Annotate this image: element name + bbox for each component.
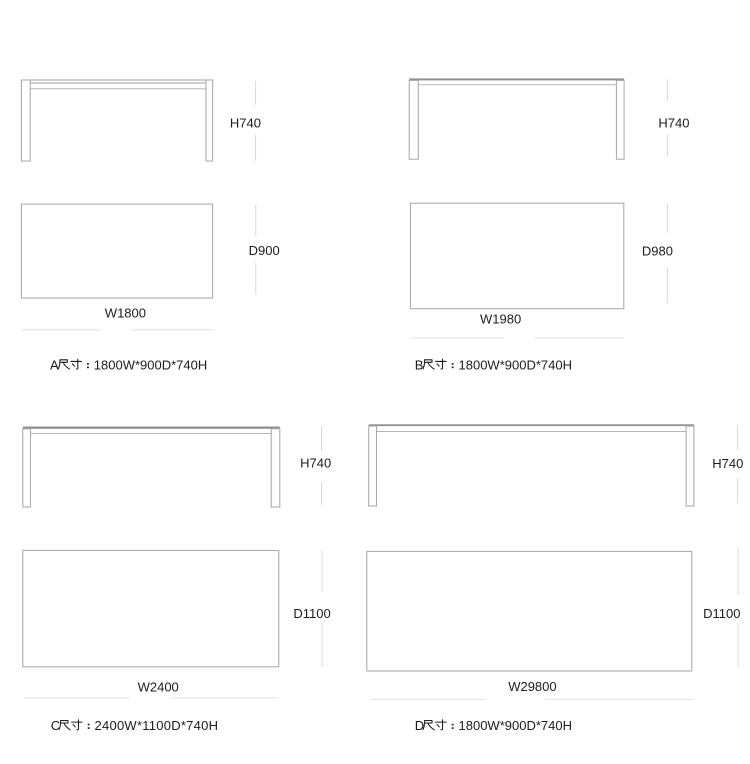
- svg-text:H740: H740: [230, 115, 261, 130]
- svg-text:1800W*900D*740H: 1800W*900D*740H: [94, 358, 207, 373]
- svg-text:C: C: [51, 718, 60, 733]
- svg-text:B: B: [415, 358, 424, 373]
- svg-text:A: A: [50, 358, 59, 373]
- svg-text:D: D: [415, 718, 424, 733]
- svg-text:W1980: W1980: [480, 311, 521, 326]
- svg-text:H740: H740: [300, 455, 331, 470]
- svg-text:D900: D900: [249, 243, 280, 258]
- svg-text:D1100: D1100: [703, 606, 740, 621]
- svg-text:D980: D980: [642, 244, 673, 259]
- svg-text:W2400: W2400: [138, 680, 179, 695]
- svg-text:1800W*900D*740H: 1800W*900D*740H: [459, 718, 572, 733]
- svg-text:H740: H740: [658, 115, 689, 130]
- svg-text:2400W*1100D*740H: 2400W*1100D*740H: [95, 718, 219, 733]
- svg-text:W1800: W1800: [105, 306, 146, 321]
- svg-text:H740: H740: [712, 456, 743, 471]
- svg-text:1800W*900D*740H: 1800W*900D*740H: [459, 358, 572, 373]
- svg-text:W29800: W29800: [508, 679, 556, 694]
- svg-text:D1100: D1100: [293, 606, 330, 621]
